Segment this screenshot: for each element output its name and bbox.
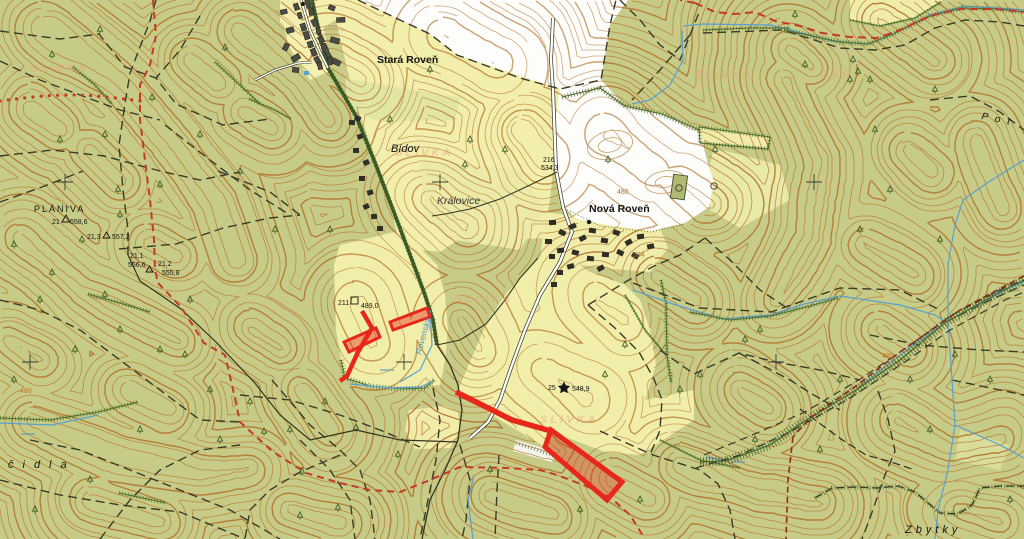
- svg-text:21,3: 21,3: [87, 234, 101, 241]
- svg-text:216: 216: [543, 157, 555, 164]
- svg-text:480: 480: [882, 353, 894, 360]
- svg-text:Královice: Královice: [437, 195, 480, 207]
- svg-text:Bídov: Bídov: [391, 143, 421, 155]
- svg-text:21,1: 21,1: [130, 253, 144, 260]
- svg-text:Stará Roveň: Stará Roveň: [377, 54, 438, 66]
- svg-text:534,3: 534,3: [541, 165, 559, 172]
- svg-text:SLIVKA: SLIVKA: [455, 293, 513, 305]
- svg-text:480: 480: [20, 388, 32, 395]
- svg-text:SLIVKA: SLIVKA: [540, 414, 598, 426]
- svg-text:OKR: OKR: [820, 69, 853, 81]
- svg-text:25: 25: [548, 385, 556, 392]
- svg-text:556,6: 556,6: [128, 262, 146, 269]
- svg-text:21: 21: [52, 219, 60, 226]
- svg-text:489,0: 489,0: [361, 303, 379, 310]
- svg-text:480: 480: [617, 189, 629, 196]
- svg-text:PLÁNIVA: PLÁNIVA: [34, 204, 85, 214]
- svg-text:555,8: 555,8: [162, 270, 180, 277]
- svg-text:211: 211: [338, 300, 349, 307]
- svg-text:548,9: 548,9: [572, 386, 590, 393]
- svg-text:Nová Roveň: Nová Roveň: [589, 203, 650, 215]
- svg-text:21,2: 21,2: [158, 261, 172, 268]
- svg-text:Zbytky: Zbytky: [904, 524, 961, 536]
- svg-text:SLIVKA: SLIVKA: [695, 69, 753, 81]
- svg-text:558,6: 558,6: [70, 219, 88, 226]
- svg-text:557,2: 557,2: [112, 234, 130, 241]
- svg-text:504: 504: [633, 252, 645, 259]
- svg-text:čidla: čidla: [8, 459, 76, 471]
- svg-text:SLIVKA: SLIVKA: [30, 63, 88, 75]
